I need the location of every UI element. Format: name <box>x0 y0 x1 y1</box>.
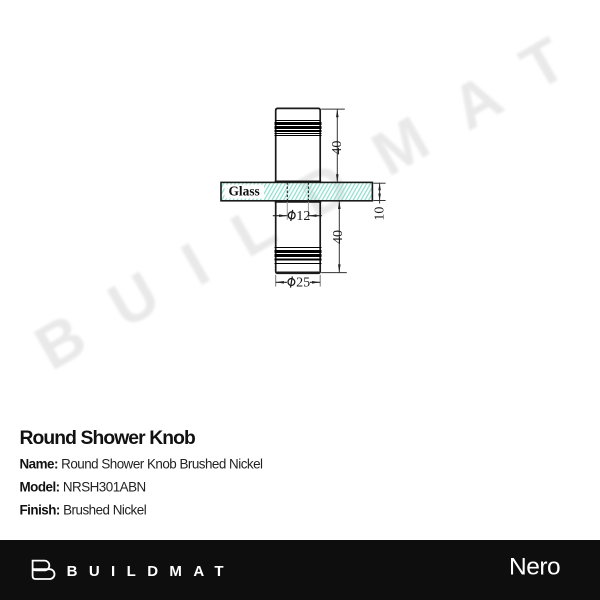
svg-text:BUILDMAT: BUILDMAT <box>67 563 235 580</box>
svg-text:40: 40 <box>330 141 345 155</box>
svg-text:25: 25 <box>296 276 310 291</box>
svg-text:Finish: Brushed Nickel: Finish: Brushed Nickel <box>20 503 147 518</box>
svg-text:Round Shower Knob: Round Shower Knob <box>20 428 195 449</box>
svg-text:Name: Round Shower Knob Brushe: Name: Round Shower Knob Brushed Nickel <box>20 457 264 472</box>
svg-text:Model: NRSH301ABN: Model: NRSH301ABN <box>20 480 146 495</box>
svg-text:12: 12 <box>296 209 310 224</box>
svg-text:10: 10 <box>372 207 387 221</box>
svg-text:Glass: Glass <box>229 184 260 199</box>
svg-text:Nero: Nero <box>509 554 560 581</box>
svg-text:40: 40 <box>331 230 346 244</box>
